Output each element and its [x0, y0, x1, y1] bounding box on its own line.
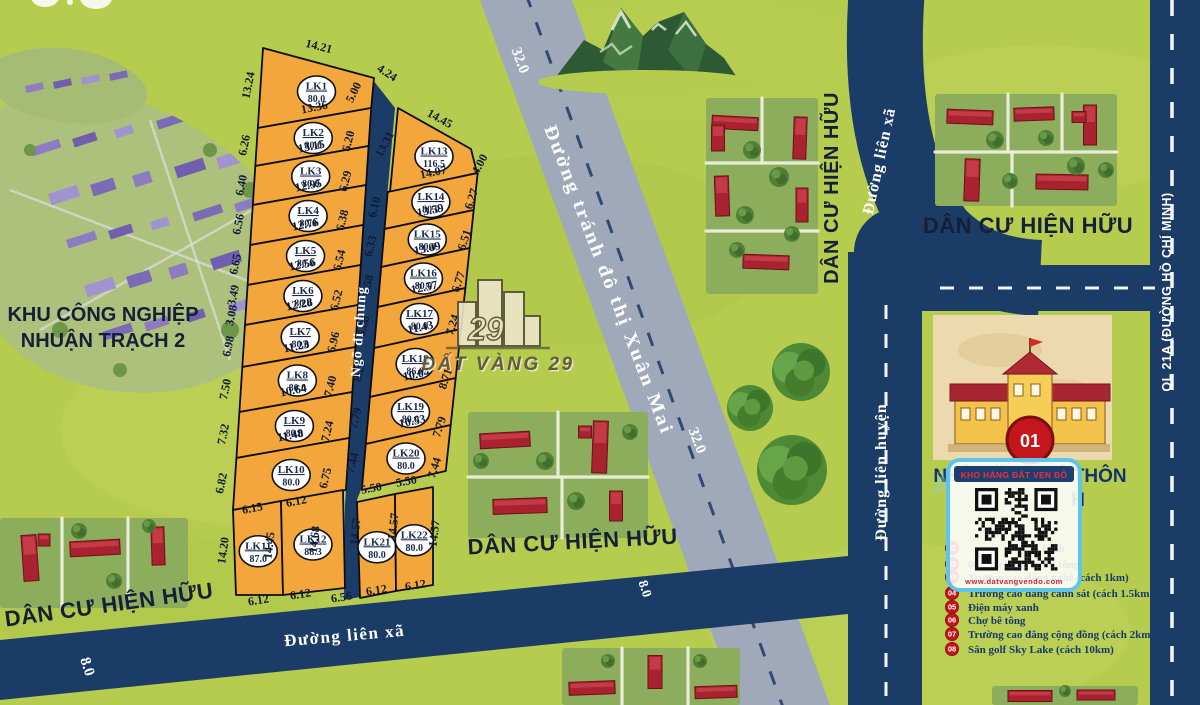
map-viewport: 01 NHÀ VĂN HOÁ THÔN H À VĂN HOÁ 01Linh02… — [0, 0, 1200, 705]
residential-label-top-right: DÂN CƯ HIỆN HỮU — [923, 213, 1133, 238]
house — [592, 421, 609, 473]
house — [1008, 691, 1052, 702]
industrial-label-line1: KHU CÔNG NGHIỆP — [7, 302, 198, 326]
bush — [986, 131, 1004, 149]
plot-area-LK22: 80.0 — [406, 543, 424, 554]
community-house-area: 01 — [933, 315, 1112, 463]
bush — [622, 424, 638, 440]
house — [947, 109, 993, 125]
school-window — [976, 408, 985, 420]
plot-id-LK9: LK9 — [284, 415, 306, 427]
qr-panel: KHO HÀNG ĐẤT VEN ĐÔ www.datvangvendo.com — [948, 460, 1080, 590]
bush — [784, 226, 800, 242]
legend-badge-number: 05 — [948, 603, 956, 612]
bush — [736, 206, 754, 224]
industrial-label-line2: NHUẬN TRẠCH 2 — [21, 328, 185, 352]
tree — [727, 385, 773, 431]
school-window — [1014, 384, 1023, 396]
ql21a-road — [1150, 0, 1200, 705]
legend-item-07: 07Trường cao đẳng cộng đồng (cách 2km) — [946, 628, 1155, 642]
house — [579, 426, 592, 438]
ql21a-name: QL 21A (ĐƯỜNG HỒ CHÍ MINH) — [1159, 192, 1174, 391]
plot-area-LK20: 80.0 — [397, 461, 415, 472]
house — [480, 431, 531, 449]
house — [1014, 107, 1054, 121]
house — [610, 491, 623, 521]
house — [151, 527, 165, 565]
plot-id-LK20: LK20 — [393, 448, 420, 460]
bush — [71, 523, 87, 539]
legend-text: Sân golf Sky Lake (cách 10km) — [968, 644, 1114, 656]
plot-id-LK13: LK13 — [421, 146, 448, 158]
house — [70, 539, 121, 557]
school-window — [991, 408, 1000, 420]
residential-cluster — [468, 412, 648, 538]
bush — [473, 453, 489, 469]
tree — [772, 343, 830, 401]
lien-huyen-name: Đường liên huyện — [873, 403, 890, 541]
qr-panel-title: KHO HÀNG ĐẤT VEN ĐÔ — [961, 469, 1068, 480]
house — [493, 498, 547, 515]
plot-area-LK21: 80.0 — [368, 550, 386, 561]
house — [796, 188, 808, 222]
school-window — [1087, 408, 1096, 420]
school-window — [1031, 384, 1040, 396]
bush — [1098, 162, 1114, 178]
plot-id-LK8: LK8 — [287, 370, 309, 382]
connector-road — [920, 265, 1165, 311]
map-canvas: 01 NHÀ VĂN HOÁ THÔN H À VĂN HOÁ 01Linh02… — [0, 0, 1200, 705]
house — [714, 176, 729, 216]
house — [793, 117, 807, 159]
brand-name: ĐẤT VÀNG 29 — [421, 353, 574, 375]
residential-cluster — [562, 648, 740, 705]
bush — [743, 141, 761, 159]
house — [648, 656, 662, 689]
legend-text: Chợ bê tông — [968, 615, 1026, 627]
residential-cluster — [935, 94, 1117, 206]
house — [1077, 690, 1115, 700]
house — [1072, 112, 1086, 123]
tree — [757, 435, 827, 505]
bush — [1067, 157, 1085, 175]
bush — [1059, 685, 1071, 697]
bush — [1002, 173, 1018, 189]
plot-id-LK10: LK10 — [278, 464, 305, 476]
bush — [693, 654, 707, 668]
plot-id-LK7: LK7 — [290, 326, 312, 338]
bush — [536, 452, 554, 470]
plot-id-LK1: LK1 — [306, 81, 327, 93]
house — [21, 535, 39, 582]
plot-area-LK10: 80.0 — [282, 478, 300, 489]
bush — [729, 242, 745, 258]
bush — [601, 654, 615, 668]
school-window — [1057, 408, 1066, 420]
school-window — [961, 408, 970, 420]
legend-text: Trường cao đẳng cộng đồng (cách 2km) — [968, 629, 1154, 641]
house — [1036, 174, 1088, 190]
legend-badge-number: 06 — [948, 616, 956, 625]
plot-id-LK22: LK22 — [401, 529, 428, 541]
legend-text: Điện máy xanh — [968, 602, 1039, 614]
brand-logo-number: 29 — [467, 311, 504, 347]
house — [964, 159, 980, 201]
legend-item-08: 08Sân golf Sky Lake (cách 10km) — [946, 643, 1115, 657]
bush — [106, 573, 122, 589]
residential-cluster — [706, 98, 818, 294]
house — [712, 125, 725, 151]
house — [38, 534, 50, 546]
school-window — [1072, 408, 1081, 420]
bush — [567, 492, 585, 510]
bush — [1038, 130, 1054, 146]
house — [569, 681, 615, 696]
house — [743, 254, 789, 270]
qr-panel-url: www.datvangvendo.com — [964, 577, 1063, 586]
legend-badge-number: 07 — [948, 630, 956, 639]
bush — [142, 519, 156, 533]
bush — [769, 167, 789, 187]
legend-badge-number: 08 — [948, 645, 956, 654]
location-badge-number: 01 — [1020, 431, 1040, 451]
house — [695, 685, 737, 698]
residential-label-vertical: DÂN CƯ HIỆN HỮU — [819, 92, 843, 284]
residential-cluster — [992, 685, 1138, 705]
